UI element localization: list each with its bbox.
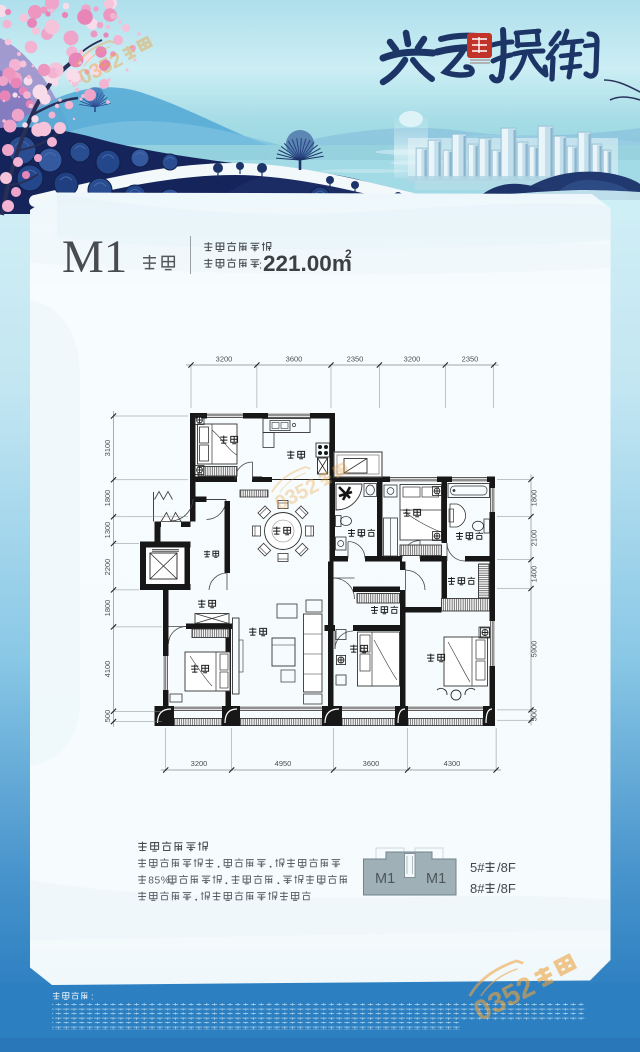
svg-text:/8F: /8F [497, 860, 516, 875]
svg-text:2100: 2100 [530, 530, 539, 547]
svg-text:1800: 1800 [103, 600, 112, 617]
svg-text:3600: 3600 [363, 759, 380, 768]
svg-text:2: 2 [345, 247, 352, 261]
svg-text:3200: 3200 [191, 759, 208, 768]
svg-text:1400: 1400 [530, 566, 539, 583]
svg-text:3600: 3600 [286, 355, 303, 364]
svg-text:4300: 4300 [444, 759, 461, 768]
svg-text:3200: 3200 [216, 355, 233, 364]
svg-text::: : [91, 992, 94, 1002]
svg-text:1800: 1800 [103, 490, 112, 507]
svg-text:M1: M1 [426, 871, 446, 887]
svg-text:2350: 2350 [462, 355, 479, 364]
svg-text:4950: 4950 [275, 759, 292, 768]
svg-text:8: 8 [148, 876, 154, 887]
svg-text:221.00m: 221.00m [263, 251, 352, 276]
svg-text:4100: 4100 [103, 661, 112, 678]
svg-text:3200: 3200 [404, 355, 421, 364]
svg-text:5: 5 [155, 876, 161, 887]
svg-text:5#: 5# [470, 860, 485, 875]
svg-text:2350: 2350 [347, 355, 364, 364]
svg-text:M1: M1 [375, 871, 395, 887]
svg-text:8#: 8# [470, 881, 485, 896]
svg-text:3100: 3100 [103, 440, 112, 457]
svg-text:500: 500 [103, 710, 112, 723]
svg-text:1300: 1300 [103, 522, 112, 539]
svg-text:M1: M1 [62, 231, 127, 283]
svg-text:5900: 5900 [530, 641, 539, 658]
svg-text:2200: 2200 [103, 559, 112, 576]
svg-text:1800: 1800 [530, 490, 539, 507]
svg-text:/8F: /8F [497, 881, 516, 896]
svg-text:500: 500 [530, 709, 539, 722]
svg-text::: : [259, 260, 262, 272]
